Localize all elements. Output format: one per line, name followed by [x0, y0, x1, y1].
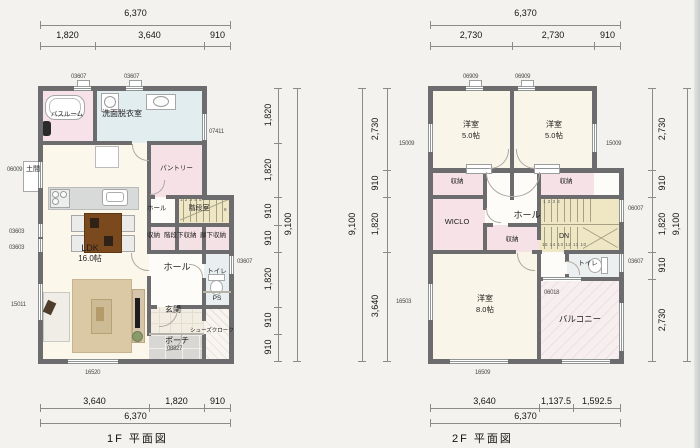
tick: [274, 143, 282, 144]
tick: [358, 88, 366, 89]
code-window: 03607: [237, 259, 252, 265]
tick: [512, 42, 513, 50]
wall: [510, 88, 514, 170]
dim-label: 910: [594, 31, 621, 40]
fridge-icon: [95, 146, 119, 168]
tick: [620, 42, 621, 50]
window-shutter-icon: [521, 80, 534, 87]
sink-bowl-icon: [106, 192, 124, 202]
dim-line: [430, 25, 621, 26]
dim-line: [652, 88, 653, 361]
dim-line: [362, 88, 363, 361]
code-window: 03603: [9, 245, 24, 251]
window: [38, 284, 43, 320]
tick: [293, 88, 301, 89]
tick: [274, 334, 282, 335]
tick: [383, 197, 391, 198]
dim-label: 2,730: [658, 107, 668, 151]
dim-label: 9,100: [348, 202, 358, 246]
wall: [483, 223, 493, 227]
label-hall: ホール: [152, 263, 202, 272]
ps-divider: [203, 291, 231, 293]
tick: [430, 404, 431, 412]
wall: [147, 250, 233, 254]
stair-numbers-bottom: 15 14 13 12 11 10: [542, 243, 586, 248]
burner-icon: [52, 191, 59, 198]
wall: [147, 223, 233, 227]
tick: [620, 21, 621, 29]
window: [38, 239, 43, 252]
wall: [166, 195, 206, 199]
label-bedroom-8-size: 8.0帖: [450, 306, 520, 314]
tick: [274, 225, 282, 226]
window: [428, 284, 433, 320]
dim-label: 1,820: [264, 148, 274, 192]
balcony-rail: [562, 359, 610, 364]
dim-label: 6,370: [430, 412, 621, 421]
wall: [565, 250, 569, 262]
stair-tread: [570, 199, 571, 222]
floor-plan-sheet: 1 2 3 4 5 8: [0, 0, 700, 448]
dim-label: 1,820: [264, 257, 274, 301]
wall: [202, 334, 206, 361]
wall: [40, 141, 132, 145]
vanity-bowl-icon: [153, 96, 169, 107]
dim-line: [430, 423, 621, 424]
dim-label: 1,820: [264, 93, 274, 137]
tick: [149, 404, 150, 412]
wall: [537, 195, 623, 199]
dim-label: 2,730: [371, 107, 381, 151]
tick: [230, 419, 231, 427]
code-porch: 08827: [167, 346, 182, 352]
dim-label: 910: [371, 161, 381, 205]
balcony-door: [543, 277, 581, 281]
tick: [274, 252, 282, 253]
code-window: 06909: [515, 74, 530, 80]
label-bedroom-2-size: 5.0帖: [518, 132, 590, 140]
tick: [204, 42, 205, 50]
label-bedroom-1-size: 5.0帖: [435, 132, 507, 140]
tick: [274, 88, 282, 89]
label-genkan: 玄関: [152, 306, 194, 314]
tick: [573, 404, 574, 412]
stair-number-last: 8: [224, 208, 227, 213]
dim-label: 9,100: [672, 202, 682, 246]
code-window: 15009: [399, 141, 414, 147]
label-closet-left: 収納: [430, 179, 484, 186]
dim-label: 1,820: [40, 31, 95, 40]
tick: [204, 404, 205, 412]
dim-label: 6,370: [430, 9, 621, 18]
washer-drum-icon: [104, 96, 116, 108]
window: [38, 224, 43, 237]
dim-label: 1,820: [371, 202, 381, 246]
tick: [594, 42, 595, 50]
tick: [648, 88, 656, 89]
label-balcony: バルコニー: [540, 315, 620, 324]
dim-label: 1,820: [149, 397, 204, 406]
tick: [383, 170, 391, 171]
tick: [230, 42, 231, 50]
wall: [537, 250, 541, 363]
dim-label: 910: [658, 161, 668, 205]
label-ldk: LDK: [60, 244, 120, 253]
code-window: 07411: [209, 129, 224, 135]
tick: [358, 361, 366, 362]
label-bathroom: バスルーム: [42, 112, 92, 119]
window: [619, 200, 624, 222]
label-storage-2: 階段下収納: [164, 233, 197, 240]
stair-divider: [541, 224, 619, 225]
placemat-icon: [90, 218, 99, 228]
dim-line: [430, 46, 621, 47]
wall: [202, 278, 206, 308]
label-bedroom-8: 洋室: [450, 295, 520, 303]
label-ps: PS: [204, 296, 230, 303]
balcony-rail: [619, 303, 624, 351]
label-pantry: パントリー: [150, 166, 203, 173]
label-washroom: 洗面脱衣室: [96, 110, 148, 118]
tick: [539, 404, 540, 412]
window: [68, 359, 118, 364]
tick: [40, 419, 41, 427]
code-window: 03607: [124, 74, 139, 80]
tick: [274, 307, 282, 308]
dim-label: 1,592.5: [573, 397, 621, 406]
tick: [274, 361, 282, 362]
wall: [430, 195, 487, 199]
caption-2f: 2F 平面図: [452, 430, 513, 446]
label-closet-center: 収納: [484, 237, 540, 244]
tick: [95, 42, 96, 50]
tick: [620, 419, 621, 427]
tick: [648, 170, 656, 171]
dim-label: 2,730: [430, 31, 512, 40]
tick: [383, 252, 391, 253]
dim-label: 910: [204, 31, 231, 40]
label-shoe-closet: シューズクローク: [190, 329, 234, 335]
tick: [430, 42, 431, 50]
label-hall-upper: ホール: [147, 206, 167, 213]
tick: [648, 252, 656, 253]
label-wiclo: WICLO: [430, 218, 484, 226]
plan-2f: 1 2 3 4 15 14 13 12 11 10: [430, 88, 621, 361]
dim-label: 9,100: [284, 202, 294, 246]
tick: [230, 21, 231, 29]
label-storage-3: 廊下収納: [200, 233, 226, 240]
wall: [564, 250, 623, 254]
label-toilet-2f: トイレ: [568, 261, 608, 268]
window: [202, 114, 207, 140]
code-window: 16509: [475, 370, 490, 376]
tick: [683, 88, 691, 89]
window: [619, 254, 624, 272]
tick: [383, 88, 391, 89]
code-window: 06909: [463, 74, 478, 80]
dim-label: 910: [264, 325, 274, 369]
dim-line: [40, 25, 231, 26]
code-window: 15009: [606, 141, 621, 147]
label-bedroom-2: 洋室: [518, 121, 590, 129]
window-shutter-icon: [469, 80, 482, 87]
dim-line: [387, 88, 388, 361]
bath-counter-icon: [42, 121, 51, 136]
window: [428, 124, 433, 152]
burner-icon: [52, 198, 59, 205]
label-stairwell: 階段室: [179, 205, 219, 212]
dim-label: 910: [204, 397, 231, 406]
code-doma: 06009: [7, 167, 22, 173]
label-dn: DN: [559, 233, 569, 240]
stair-numbers-top: 1 2 3 4: [543, 200, 560, 205]
corridor-2f: [539, 252, 567, 279]
wall: [202, 305, 206, 321]
dim-line: [40, 408, 231, 409]
table-runner-icon: [96, 307, 104, 321]
dim-line: [430, 408, 621, 409]
window-shutter-icon: [77, 80, 90, 87]
dim-label: 3,640: [40, 397, 149, 406]
dim-line: [40, 46, 231, 47]
window-shutter-icon: [129, 80, 142, 87]
tick: [293, 361, 301, 362]
dim-label: 910: [264, 216, 274, 260]
chair-icon: [121, 235, 135, 252]
tick: [683, 361, 691, 362]
dim-label: 2,730: [512, 31, 594, 40]
scan-edge: [694, 0, 700, 448]
burner-icon: [60, 191, 67, 198]
stair-tread: [583, 199, 584, 222]
dim-label: 910: [658, 243, 668, 287]
wall: [148, 141, 206, 145]
landing-corner: [594, 170, 621, 197]
dim-label: 6,370: [40, 9, 231, 18]
chair-icon: [71, 215, 85, 232]
wall: [508, 223, 541, 227]
room-hall: [149, 252, 204, 307]
chair-icon: [121, 215, 135, 232]
code-window: 15011: [11, 302, 26, 308]
label-hall-2f: ホール: [502, 211, 552, 220]
tick: [430, 21, 431, 29]
label-bedroom-1: 洋室: [435, 121, 507, 129]
label-ldk-size: 16.0帖: [60, 255, 120, 263]
label-doma: 土間: [26, 166, 40, 173]
label-porch: ポーチ: [156, 337, 198, 345]
dim-line: [297, 88, 298, 361]
wall: [175, 195, 179, 226]
caption-1f: 1F 平面図: [107, 430, 168, 446]
window: [450, 359, 508, 364]
wall: [202, 250, 206, 264]
label-storage-1: 収納: [147, 233, 160, 240]
dim-line: [40, 423, 231, 424]
wall: [430, 250, 516, 254]
dim-label: 3,640: [95, 31, 204, 40]
dim-label: 2,730: [658, 298, 668, 342]
dim-label: 1,820: [658, 202, 668, 246]
dim-label: 3,640: [371, 284, 381, 328]
plant-icon: [132, 331, 143, 342]
code-window: 06007: [628, 206, 643, 212]
label-closet-right: 収納: [538, 179, 594, 186]
wall: [38, 86, 207, 91]
dim-label: 6,370: [40, 412, 231, 421]
code-window: 03603: [9, 229, 24, 235]
tick: [620, 404, 621, 412]
tick: [430, 419, 431, 427]
tick: [40, 21, 41, 29]
plan-1f: 1 2 3 4 5 8: [40, 88, 231, 361]
tick: [383, 361, 391, 362]
window: [592, 124, 597, 152]
wall: [229, 195, 234, 364]
dim-line: [687, 88, 688, 361]
tick: [648, 197, 656, 198]
tick: [40, 42, 41, 50]
tick: [648, 361, 656, 362]
tick: [230, 404, 231, 412]
tick: [40, 404, 41, 412]
code-window: 03607: [71, 74, 86, 80]
label-toilet: トイレ: [204, 269, 230, 276]
code-window: 16503: [396, 299, 411, 305]
tick: [648, 279, 656, 280]
code-window: 16520: [85, 370, 100, 376]
tv-icon: [135, 298, 140, 328]
stair-tread: [564, 199, 565, 222]
stair-tread: [590, 199, 591, 222]
code-window: 06018: [544, 290, 559, 296]
code-window: 03607: [628, 259, 643, 265]
tick: [274, 197, 282, 198]
stair-tread: [577, 199, 578, 222]
